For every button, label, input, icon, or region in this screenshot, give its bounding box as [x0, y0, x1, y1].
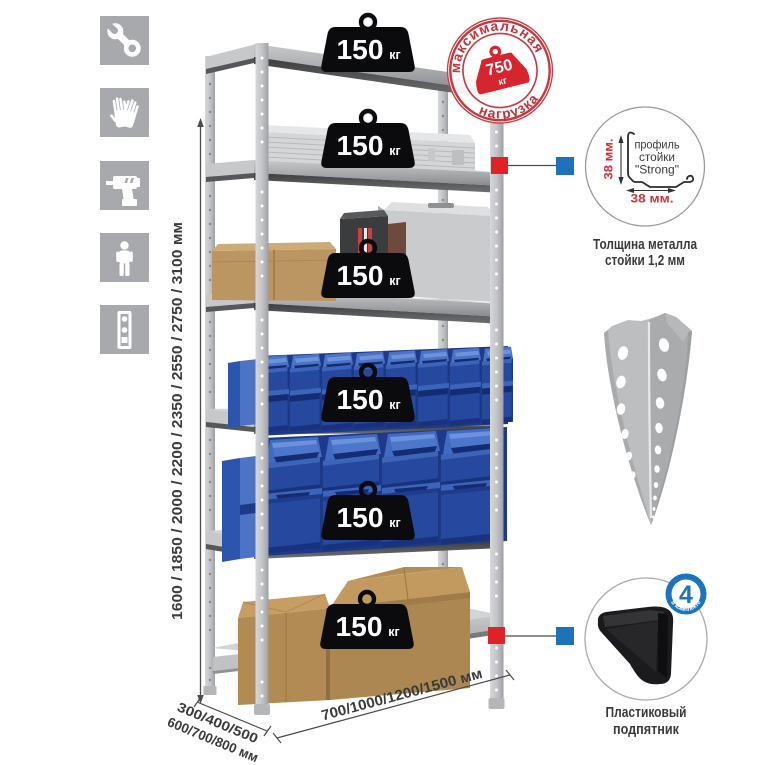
svg-text:Пластиковый: Пластиковый [606, 705, 687, 721]
svg-text:стойки: стойки [639, 152, 675, 164]
svg-text:подпятник: подпятник [613, 722, 680, 738]
svg-text:38 мм.: 38 мм. [602, 139, 616, 180]
svg-text:Толщина металла: Толщина металла [593, 237, 698, 253]
svg-text:38 мм.: 38 мм. [631, 192, 674, 206]
svg-text:4: 4 [679, 581, 693, 609]
svg-text:стойки 1,2 мм: стойки 1,2 мм [605, 253, 685, 269]
svg-text:"Strong": "Strong" [635, 165, 679, 177]
svg-text:профиль: профиль [635, 140, 680, 152]
svg-text:1600 / 1850 / 2000 / 2200 / 23: 1600 / 1850 / 2000 / 2200 / 2350 / 2550 … [170, 222, 186, 620]
